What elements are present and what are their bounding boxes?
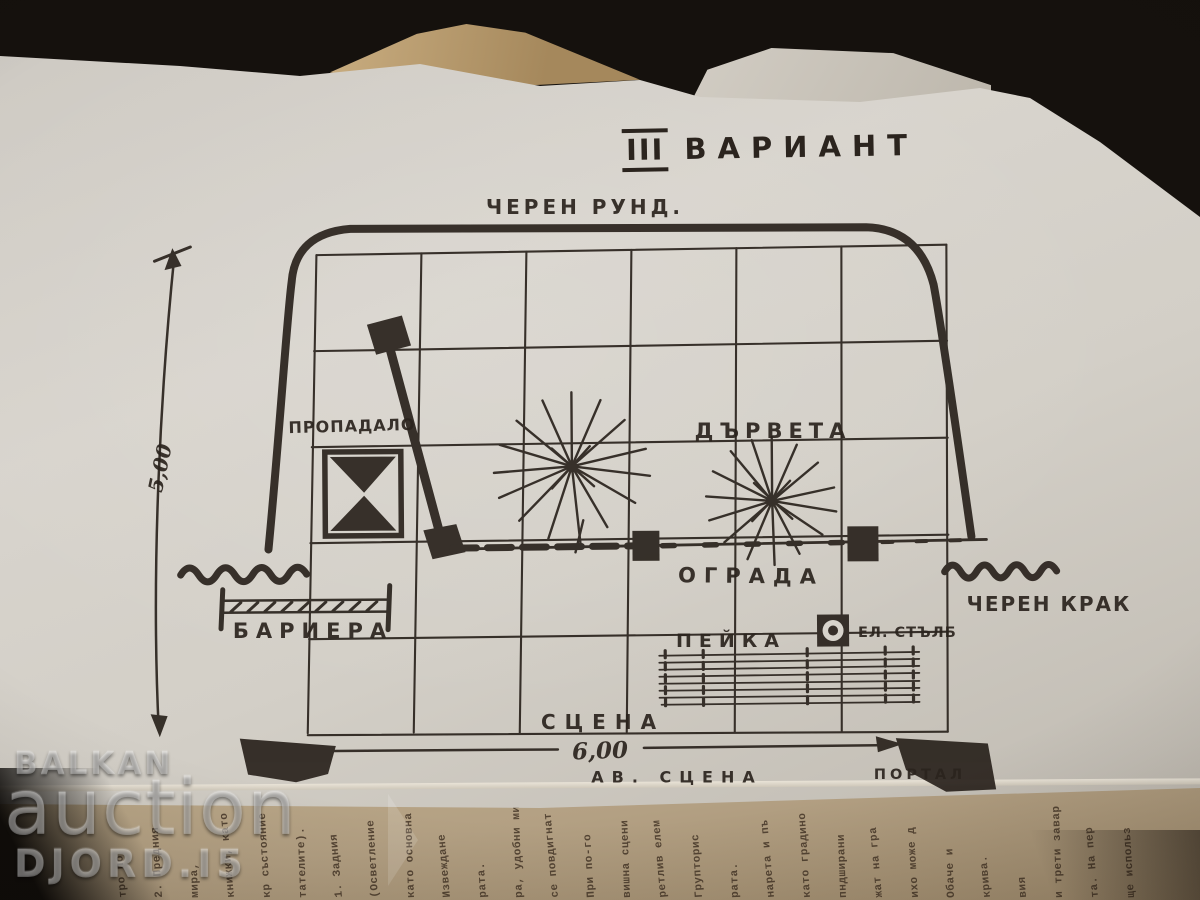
rotated-text-line: се повдигнат: [543, 812, 562, 898]
rotated-text-line: Групторис: [690, 833, 706, 898]
rotated-text-line: тателите).: [296, 827, 310, 898]
rotated-text-line: ретлив елем: [651, 819, 670, 898]
rotated-text-line: ихо може д: [906, 826, 922, 898]
rotated-text-line: пндширани: [836, 834, 850, 898]
rotated-text-line: книжки, като: [219, 812, 238, 898]
book-photo: тро по2. Предниямира,книжки, катокр съст…: [0, 0, 1200, 900]
rotated-text-line: като основна: [403, 812, 418, 898]
rotated-text-line: жат на гра: [868, 826, 886, 898]
rotated-text-line: Извеждане: [436, 833, 454, 898]
rotated-text-line: мира,: [189, 862, 202, 898]
rotated-text-line: нарета и пъ: [759, 819, 778, 898]
rotated-text-line: При по-го: [582, 833, 598, 898]
rotated-text-line: рата.: [729, 862, 742, 898]
rotated-text-line: 1. Задния: [328, 833, 346, 898]
rotated-text-line: като градино: [797, 812, 814, 898]
rotated-text-line: Обаче и: [944, 848, 958, 898]
rotated-text-line: кр състояние: [257, 812, 274, 898]
rotated-text-line: (Осветление: [365, 819, 382, 898]
rotated-text-line: ра, удобни ми: [511, 805, 526, 898]
rotated-text-line: рата.: [476, 862, 490, 898]
shadow-bottom-left: [0, 768, 170, 900]
book-page: [0, 0, 1200, 900]
rotated-text-line: вишна сцени: [619, 820, 634, 898]
shadow-bottom-right: [980, 830, 1200, 900]
